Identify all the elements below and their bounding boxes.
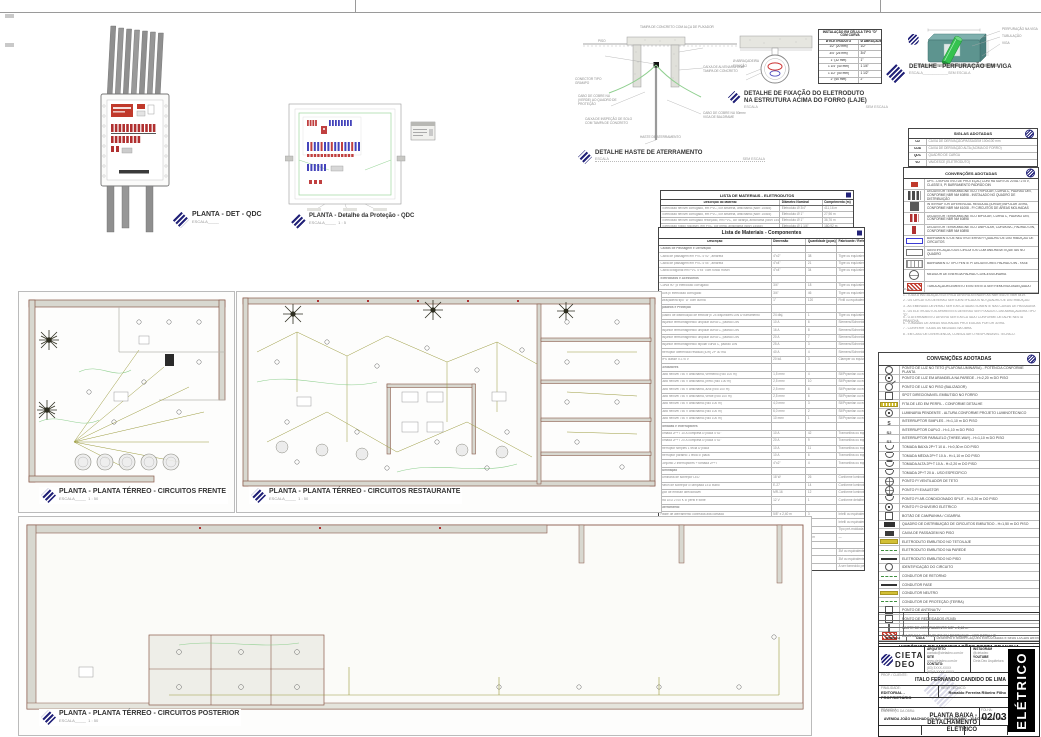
detail-title: DETALHE - PERFURAÇÃO EM VIGA [909, 64, 1036, 71]
historico-empty-row [879, 621, 1039, 629]
footer-row: REVISÃO: MEDIAÇÃO DESENHO: WAGNER OLIVEI… [879, 726, 1008, 735]
table-row: Cabo flexível 750 V antichama (rolo 100 … [659, 401, 864, 408]
legend-text: PONTO DE LUZ EM ARANDELA NA PAREDE - H=2… [900, 376, 1010, 380]
legend-text: ELETRODUTO EMBUTIDO NO TETO/LAJE [900, 540, 973, 544]
contact-cell-2: INSTAGRAM @cietadeo YOUTUBE Cieta Deo Ar… [971, 647, 1008, 673]
discipline-label: ELÉTRICO [1014, 652, 1029, 730]
legend-symbol-icon [885, 374, 893, 382]
viga-label: TUBULAÇÃO [1002, 35, 1038, 39]
detail-title: DETALHE HASTE DE ATERRAMENTO [595, 150, 765, 157]
legend-symbol-icon [906, 249, 923, 256]
historico-empty-row [879, 613, 1039, 621]
col-header: Ø ABRAÇADEIRA [858, 40, 881, 44]
purpose-cell: FINALIDADE: EDITORIAL - PROPRIETÁRIO [879, 686, 939, 698]
legend-text: ELETRODUTO EMBUTIDO NA PAREDE [900, 548, 968, 552]
legend-text: CONDUTOR DE PROTEÇÃO (TERRA) [900, 600, 966, 604]
footer-cell: REVISÃO: MEDIAÇÃO [879, 726, 922, 735]
table-row: Tomada 2P+T 20 A completa c/ placa 4"x2"… [659, 438, 864, 445]
legend-row: DISJUNTOR TERMOMAGNÉTICO BIPOLAR, CURVA … [904, 213, 1038, 224]
protection-schematic-drawing [285, 100, 440, 212]
legend-row: PONTO DE LUZ EM ARANDELA NA PAREDE - H=2… [879, 375, 1039, 384]
address-cell: ENDEREÇO DA OBRA: AVENIDA JOÃO MACHADO N… [879, 698, 1008, 708]
sheet-top-border [0, 12, 1041, 13]
legend-row: PONTO P/ EXAUSTOR [879, 486, 1039, 495]
table-title: CONVENÇÕES ADOTADAS [945, 171, 997, 176]
detail-title: PLANTA - Detalhe da Proteção - QDC [309, 213, 414, 220]
legend-row: PONTO DE LUZ NO TETO (PLAFON/LUMINÁRIA) … [879, 366, 1039, 375]
table-row: Disjuntor termomagnético unipolar curva … [659, 327, 864, 334]
legend-symbol-icon [881, 550, 897, 551]
brand-name: DEO [895, 660, 923, 669]
table-row: Interruptor diferencial residual (IDR) 2… [659, 349, 864, 356]
tree-symbol [423, 300, 443, 320]
legend-text: INTERRUPTOR DUPLO - H=1,10 m DO PISO [900, 428, 976, 432]
grounding-detail-title: DETALHE HASTE DE ATERRAMENTO ESCALASEM E… [578, 150, 768, 164]
table-row: Caixa octogonal em PVC 4"x4" com fundo m… [659, 268, 864, 275]
convencoes-main-table: CONVENÇÕES ADOTADAS PONTO DE LUZ NO TETO… [878, 352, 1040, 642]
fixation-table: INSTALAÇÃO EM CÉLULA TIPO "D" COM CURVA … [818, 29, 882, 84]
detail-scale: ESCALASEM ESCALA [595, 157, 765, 162]
legend-text: BARRAMENTO TIPO PENTE P/ DISJUNTORES PAD… [925, 262, 1030, 266]
detail-title: DETALHE DE FIXAÇÃO DO ELETRODUTO [744, 91, 888, 98]
plan-title: PLANTA - PLANTA TÉRREO - CIRCUITOS FRENT… [59, 488, 226, 496]
haste-label: TAMPA DE CONCRETO COM ALÇA DE PUXADOR [640, 26, 720, 30]
legend-text: CONDUTOR NEUTRO [900, 591, 940, 595]
protection-detail-title: PLANTA - Detalhe da Proteção - QDC ESCAL… [290, 213, 450, 229]
stamp-icon [1027, 355, 1036, 364]
legend-symbol-icon [885, 445, 894, 450]
legend-symbol-icon [881, 576, 897, 577]
fixation-table-row: 1" (32 mm) 1" [819, 58, 881, 65]
haste-label: CABO DE COBRE NU (VERDE) AO QUADRO DE PR… [578, 95, 624, 107]
legend-text: PONTO DE LUZ NO TETO (PLAFON/LUMINÁRIA) … [900, 366, 1039, 374]
detail-title: PLANTA - DET - QDC [192, 211, 262, 219]
legend-symbol-icon [910, 202, 919, 211]
table-row: Conjunto 2 interruptores + tomada 2P+T 4… [659, 460, 864, 467]
legend-text: DISJUNTOR TERMOMAGNÉTICO BIPOLAR, CURVA … [925, 215, 1038, 223]
legend-row: BARRAMENTO DE NEUTRO/TERRA P/ QUADRO DE … [904, 236, 1038, 247]
legend-symbol-icon [885, 392, 893, 400]
legend-symbol-icon [885, 496, 894, 501]
legend-symbol-icon [885, 512, 893, 520]
legend-row: TOMADA ALTA 2P+T 10 A - H=2,20 m DO PISO [879, 461, 1039, 470]
legend-row: TOMADA 2P+T 20 A - USO ESPECÍFICO [879, 469, 1039, 478]
legend-text: IDENTIFICAÇÃO DOS CIRCUITOS COM ANILHAS/… [925, 249, 1038, 257]
brand-cell: CIETA DEO [879, 647, 925, 673]
legend-text: MEDIDOR DE ENERGIA PADRÃO CONCESSIONÁRIA [925, 273, 1008, 277]
table-row: DPS classe II 275 V 20 kA 3 Clamper ou e… [659, 357, 864, 364]
beam-detail-title: DETALHE - PERFURAÇÃO EM VIGA ESCALA_____… [886, 64, 1036, 84]
legend-row: CONDUTOR FASE [879, 581, 1039, 590]
detail-scale: ESCALASEM ESCALA [744, 105, 888, 109]
legend-text: SPOT DIRECIONÁVEL EMBUTIDO NO FORRO [900, 393, 980, 397]
legend-symbol-icon [910, 214, 919, 222]
firm-logo-icon [578, 150, 592, 164]
legend-symbol-icon [885, 563, 893, 571]
legend-symbol-icon [909, 270, 919, 280]
tree-symbol [39, 330, 59, 350]
legend-row: BOTÃO DE CAMPAINHA / CIGARRA [879, 512, 1039, 521]
client-name: ITALO FERNANDO CANDIDO DE LIMA [881, 677, 1006, 683]
table-row: Luminária de sobrepor LED 18 W 26 Confor… [659, 475, 864, 482]
legend-row: CONDUTOR DE PROTEÇÃO (TERRA) [879, 598, 1039, 607]
legend-row: PONTO DE LUZ NO PISO (BALIZADOR) [879, 383, 1039, 392]
legend-text: INTERRUPTOR PARALELO (THREE-WAY) - H=1,1… [900, 436, 1006, 440]
table-row: Interruptor paralelo 1 tecla c/ placa 10… [659, 453, 864, 460]
cell-value: Ronaldo Ferreira Ribeiro Filho [941, 690, 1006, 695]
edge-mark [5, 14, 14, 18]
plan-scale: ESCALA_____ 1 : 50 [269, 496, 460, 501]
tree-symbol [283, 304, 303, 324]
convencoes-top-table: CONVENÇÕES ADOTADAS DPS - DISPOSITIVO DE… [903, 167, 1039, 294]
table-row: Spot de embutir direcionável MR-16 12 Co… [659, 490, 864, 497]
legend-text: PONTO P/ EXAUSTOR [900, 488, 941, 492]
legend-symbol-icon [885, 366, 893, 374]
firm-logo-icon [290, 213, 306, 229]
haste-label: HASTE DE ATERRAMENTO [640, 136, 700, 140]
panel-box [101, 94, 169, 186]
footer-cell: DESENHO: WAGNER OLIVEIRA [922, 726, 965, 735]
legend-symbol-icon [906, 260, 923, 268]
legend-text: IDENTIFICAÇÃO DO CIRCUITO [900, 565, 955, 569]
legend-row: INTERRUPTOR DUPLO - H=1,10 m DO PISO [879, 426, 1039, 435]
legend-symbol-icon [881, 558, 897, 560]
legend-symbol-icon [885, 477, 894, 486]
legend-row: IDENTIFICAÇÃO DO CIRCUITO [879, 564, 1039, 573]
qdc-detail-title: PLANTA - DET - QDC ESCALA_____ [172, 211, 292, 228]
table-row: Cabo flexível 750 V antichama (rolo 100 … [659, 416, 864, 423]
table-row: Aterramento [659, 505, 864, 512]
table-row: Disjuntor termomagnético bipolar curva C… [659, 342, 864, 349]
firm-logo-icon [251, 488, 266, 503]
legend-row: BARRAMENTO TIPO PENTE P/ DISJUNTORES PAD… [904, 259, 1038, 270]
legend-row: DPS - DISPOSITIVO DE PROTEÇÃO CONTRA SUR… [904, 179, 1038, 190]
legend-row: PONTO P/ AR-CONDICIONADO SPLIT - H=2,20 … [879, 495, 1039, 504]
fixation-table-row: 1 1/2" (50 mm) 1 1/2" [819, 71, 881, 78]
col-header: Descrição [659, 240, 771, 244]
legend-symbol-icon [881, 584, 897, 586]
legend-text: CAIXA DE PASSAGEM NO PISO [900, 531, 956, 535]
fixation-table-header: INSTALAÇÃO EM CÉLULA TIPO "D" COM CURVA [819, 30, 881, 40]
plan-scale: ESCALA_____ 1 : 50 [59, 496, 226, 501]
table-row: Caixas de Passagem e Derivação [659, 246, 864, 253]
edge-mark [5, 43, 14, 47]
table-row: Curva 90° p/ eletroduto corrugado 3/4" 1… [659, 283, 864, 290]
col-header: DESENHO E MODIFICAÇÕES EXECUTADAS E SEUS… [934, 637, 1039, 641]
legend-text: DPS - DISPOSITIVO DE PROTEÇÃO CONTRA SUR… [925, 180, 1038, 188]
qdc-3d-detail-drawing [85, 22, 205, 234]
tree-symbol [557, 302, 575, 320]
legend-symbol-icon [885, 470, 894, 475]
legend-text: PONTO P/ AR-CONDICIONADO SPLIT - H=2,20 … [900, 497, 1000, 501]
col-header: Fabricante / Referência [836, 239, 864, 245]
legend-text: TOMADA BAIXA 2P+T 10 A - H=0,30 m DO PIS… [900, 445, 981, 449]
sheet-number: 02/03 [981, 712, 1007, 723]
legend-text: TOMADA 2P+T 20 A - USO ESPECÍFICO [900, 471, 969, 475]
col-header: Diâmetro Nominal [779, 200, 821, 205]
siglas-row: CD CAIXA DE DERIVAÇÃO/PASSAGEM 100x100 m… [909, 139, 1037, 146]
table-row: Caixa de passagem em PVC 4"x4", amarela … [659, 261, 864, 268]
viga-label: VIGA [1002, 42, 1038, 46]
client-cell: PROP. / CLIENTE: ITALO FERNANDO CANDIDO … [879, 673, 1008, 686]
legend-row: SPOT DIRECIONÁVEL EMBUTIDO NO FORRO [879, 392, 1039, 401]
plan-title-frente: PLANTA - PLANTA TÉRREO - CIRCUITOS FRENT… [39, 487, 228, 504]
detail-title: NA ESTRUTURA ACIMA DO FORRO (LAJE) [744, 98, 888, 105]
legend-row: QUADRO DE DISTRIBUIÇÃO DE CIRCUITOS EMBU… [879, 521, 1039, 530]
legend-row: DISJUNTOR TERMOMAGNÉTICO TRIPOLAR, CURVA… [904, 190, 1038, 201]
legend-row: PONTO P/ VENTILADOR DE TETO [879, 478, 1039, 487]
fixation-table-row: 2" (60 mm) 2" [819, 78, 881, 84]
table-row: Tomadas e Interruptores [659, 423, 864, 430]
legend-symbol-icon [906, 238, 923, 245]
stamp-icon [1025, 129, 1034, 138]
haste-label: CAIXA DE INSPEÇÃO DE SOLO COM TAMPA DE C… [585, 118, 637, 126]
siglas-table: SIGLAS ADOTADAS CD CAIXA DE DERIVAÇÃO/PA… [908, 128, 1038, 167]
legend-row: MEDIDOR DE ENERGIA PADRÃO CONCESSIONÁRIA [904, 270, 1038, 281]
sheet-title-cell: PRANCHA: PLANTA BAIXA - DETALHAMENTO ELÉ… [879, 708, 980, 726]
table-row: Plafon de sobrepor c/ lâmpada LED bulbo … [659, 483, 864, 490]
brand-logo-icon [881, 654, 893, 666]
legend-text: QUADRO DE DISTRIBUIÇÃO DE CIRCUITOS EMBU… [900, 522, 1030, 526]
legend-symbol-icon [884, 522, 895, 527]
firm-logo-icon [41, 488, 56, 503]
table-row: Disjuntor termomagnético unipolar curva … [659, 335, 864, 342]
note-line: 8 - EM CASO DE DIVERGÊNCIA, CONSULTAR O … [903, 333, 1037, 339]
col-header: DATA [906, 637, 934, 641]
siglas-row: QDC QUADRO DE CARGA [909, 153, 1037, 160]
table-row: Quadros e Proteção [659, 305, 864, 312]
fixation-table-row: 3/4" (25 mm) 3/4" [819, 51, 881, 58]
haste-label: CONECTOR TIPO GRAMPO [575, 78, 611, 86]
firm-logo-icon [886, 64, 906, 84]
firm-logo-icon [41, 710, 56, 725]
legend-symbol-icon [880, 591, 898, 595]
col-header: Dimensão [771, 239, 806, 245]
table-row: Condutores [659, 364, 864, 371]
floorplan-restaurante: PLANTA - PLANTA TÉRREO - CIRCUITOS RESTA… [236, 291, 662, 513]
legend-symbol-icon [885, 486, 894, 495]
tree-symbol [37, 400, 57, 420]
table-row: Cabo flexível 750 V antichama, verde (ro… [659, 394, 864, 401]
legend-text: INTERRUPTOR DIFERENCIAL RESIDUAL (IDR/DR… [925, 203, 1038, 211]
stamp-icon [857, 231, 862, 236]
detail-scale: ESCALA_____________SEM ESCALA [909, 71, 1036, 75]
legend-text: CONDUTOR DE RETORNO [900, 574, 948, 578]
fold-tick [880, 0, 881, 12]
table-row: Fita LED 2700 K c/ perfil e fonte 12 V 1… [659, 497, 864, 504]
legend-row: CONDUTOR NEUTRO [879, 589, 1039, 598]
contact-cell-1: ARQUITETO contato@cietadeo.com.br SITE w… [925, 647, 971, 673]
legend-text: FITA DE LED EM PERFIL - CONFORME DETALHE [900, 402, 984, 406]
legend-row: CAIXA DE PASSAGEM NO PISO [879, 529, 1039, 538]
detail-scale: ESCALA_____ 1 : 5 [309, 220, 414, 225]
haste-label: PISO [598, 40, 618, 44]
table-row: Cabo flexível 750 V antichama, vermelho … [659, 372, 864, 379]
legend-symbol-icon [885, 531, 894, 536]
legend-row: ELETRODUTO EMBUTIDO NO TETO/LAJE [879, 538, 1039, 547]
cad-sheet: PLANTA - DET - QDC ESCALA_____ [0, 0, 1041, 737]
legend-row: INTERRUPTOR PARALELO (THREE-WAY) - H=1,1… [879, 435, 1039, 444]
table-row: Tomada 2P+T 10 A completa c/ placa 4"x2"… [659, 431, 864, 438]
col-header: Quantidade (pças) [805, 239, 836, 245]
firm-logo-icon [728, 91, 741, 104]
floorplan-frente: PLANTA - PLANTA TÉRREO - CIRCUITOS FRENT… [18, 291, 235, 513]
conduits [107, 26, 164, 98]
legend-text: CONDUTOR FASE [900, 583, 934, 587]
table-row: Luva p/ eletroduto corrugado 3/4" 46 Tig… [659, 290, 864, 297]
table-title: Lista de Materiais - Componentes [722, 230, 802, 236]
plan-title: PLANTA - PLANTA TÉRREO - CIRCUITOS POSTE… [59, 710, 239, 718]
table-row: Cabo flexível 750 V antichama (rolo 100 … [659, 409, 864, 416]
legend-symbol-icon [885, 503, 893, 511]
legend-row: INTERRUPTOR DIFERENCIAL RESIDUAL (IDR/DR… [904, 202, 1038, 213]
sheet-number-cell: FOLHA: 02/03 [980, 708, 1008, 726]
legend-text: TOMADA ALTA 2P+T 10 A - H=2,20 m DO PISO [900, 462, 979, 466]
col-header: Comprimento (m) [822, 200, 853, 205]
table-title: CONVENÇÕES ADOTADAS [927, 356, 992, 362]
panel-legs [107, 186, 153, 232]
legend-row: TOMADA BAIXA 2P+T 10 A - H=0,30 m DO PIS… [879, 443, 1039, 452]
stamp-icon [1026, 169, 1035, 178]
detail-scale: ESCALA_____ [192, 219, 262, 224]
firm-logo-icon [172, 211, 189, 228]
floorplan-posterior-drawing [19, 517, 811, 735]
table-row: Abraçadeira tipo "D" com cunha 1" 120 Fi… [659, 298, 864, 305]
notes-block: NOTAS:1 - TODA A INSTALAÇÃO ELÉTRICA DEV… [903, 288, 1037, 338]
floorplan-frente-drawing [19, 292, 234, 512]
legend-symbol-icon [880, 539, 898, 543]
col-header: Descrição do Material [661, 201, 779, 205]
legend-text: DISJUNTOR TERMOMAGNÉTICO UNIPOLAR, CURVA… [925, 226, 1038, 234]
discipline-bar: ELÉTRICO [1008, 649, 1035, 732]
legend-symbol-icon [911, 182, 918, 187]
legend-text: INTERRUPTOR SIMPLES - H=1,10 m DO PISO [900, 419, 979, 423]
fixation-table-row: 1/2" (20 mm) 1/2" [819, 45, 881, 52]
legend-symbol-icon [885, 453, 894, 458]
historico-empty-row [879, 628, 1039, 636]
legend-row: LUMINÁRIA PENDENTE - ALTURA CONFORME PRO… [879, 409, 1039, 418]
table-row: Eletrodutos e Acessórios [659, 276, 864, 283]
table-row: Quadro de distribuição de embutir p/ 24 … [659, 313, 864, 320]
legend-symbol-icon [908, 191, 921, 200]
legend-text: TOMADA MÉDIA 2P+T 10 A - H=1,10 m DO PIS… [900, 454, 982, 458]
table-row: Cabo flexível 750 V antichama, azul (rol… [659, 386, 864, 393]
legend-text: PONTO P/ CHUVEIRO ELÉTRICO [900, 505, 959, 509]
table-title: LISTA DE MATERIAIS - ELETRODUTOS [720, 193, 794, 198]
legend-symbol-icon [880, 402, 898, 407]
eletrodutos-table: LISTA DE MATERIAIS - ELETRODUTOS Descriç… [660, 190, 854, 230]
legend-row: DISJUNTOR TERMOMAGNÉTICO UNIPOLAR, CURVA… [904, 225, 1038, 236]
legend-text: BARRAMENTO DE NEUTRO/TERRA P/ QUADRO DE … [925, 237, 1038, 245]
legend-symbol-icon [881, 601, 897, 602]
legend-row: PONTO P/ CHUVEIRO ELÉTRICO [879, 504, 1039, 513]
fixation-table-row: 1 1/4" (40 mm) 1 1/4" [819, 64, 881, 71]
table-row: Caixa de passagem em PVC 4"x2", amarela … [659, 253, 864, 260]
table-row: Disjuntor termomagnético unipolar curva … [659, 320, 864, 327]
responsible-cell: RESP. TÉCNICO: Ronaldo Ferreira Ribeiro … [939, 686, 1008, 698]
legend-symbol-icon [885, 383, 893, 391]
plan-scale: ESCALA_____ 1 : 50 [59, 718, 239, 723]
legend-text: DISJUNTOR TERMOMAGNÉTICO TRIPOLAR, CURVA… [925, 190, 1038, 202]
legend-symbol-icon [912, 226, 916, 234]
fold-tick [355, 0, 356, 12]
table-title: SIGLAS ADOTADAS [954, 131, 992, 136]
footer-cell: USO: COMERCIAL [965, 726, 1008, 735]
legend-row: CONDUTOR DE RETORNO [879, 572, 1039, 581]
legend-row: ELETRODUTO EMBUTIDO NA PAREDE [879, 546, 1039, 555]
siglas-row: CDA CAIXA DE DERIVAÇÃO ALTA (ACIMA DO FO… [909, 146, 1037, 153]
plan-title: PLANTA - PLANTA TÉRREO - CIRCUITOS RESTA… [269, 488, 460, 496]
legend-row: ELETRODUTO EMBUTIDO NO PISO [879, 555, 1039, 564]
legend-text: ELETRODUTO EMBUTIDO NO PISO [900, 557, 963, 561]
floorplan-restaurante-drawing [237, 292, 661, 512]
legend-row: INTERRUPTOR SIMPLES - H=1,10 m DO PISO [879, 418, 1039, 427]
legend-row: TOMADA MÉDIA 2P+T 10 A - H=1,10 m DO PIS… [879, 452, 1039, 461]
viga-label: PERFURAÇÃO NA VIGA [1002, 28, 1038, 32]
fixation-detail-title: DETALHE DE FIXAÇÃO DO ELETRODUTO NA ESTR… [728, 91, 888, 110]
table-row: Iluminação [659, 468, 864, 475]
fixation-label: FIXAÇÃO [733, 65, 763, 69]
legend-text: PONTO P/ VENTILADOR DE TETO [900, 479, 960, 483]
col-header: Ø ELETRODUTO [819, 40, 858, 44]
legend-text: LUMINÁRIA PENDENTE - ALTURA CONFORME PRO… [900, 411, 1028, 415]
haste-label: CABO DE COBRE NU 50mm² VIGA DE BALDRAME [703, 112, 747, 120]
brand-name: CIETA [895, 651, 923, 660]
stamp-icon [846, 193, 851, 198]
floorplan-posterior: PLANTA - PLANTA TÉRREO - CIRCUITOS POSTE… [18, 516, 812, 736]
table-row: Cabo flexível 750 V antichama, preto (ro… [659, 379, 864, 386]
plan-title-posterior: PLANTA - PLANTA TÉRREO - CIRCUITOS POSTE… [39, 709, 241, 726]
table-row: Interruptor simples 1 tecla c/ placa 10 … [659, 446, 864, 453]
legend-row: FITA DE LED EM PERFIL - CONFORME DETALHE [879, 400, 1039, 409]
plan-title-restaurante: PLANTA - PLANTA TÉRREO - CIRCUITOS RESTA… [249, 487, 462, 504]
title-block: ELÉTRICO CIETA DEO ARQUITETO contato@cie… [878, 646, 1040, 737]
col-header: SÍMBOLO [879, 637, 906, 641]
siglas-row: VD VAI/DESCE (ELETRODUTO) [909, 160, 1037, 166]
contact-value: Cieta Deo Arquitetura [973, 660, 1006, 664]
legend-text: BOTÃO DE CAMPAINHA / CIGARRA [900, 514, 962, 518]
legend-row: IDENTIFICAÇÃO DOS CIRCUITOS COM ANILHAS/… [904, 247, 1038, 258]
legend-text: PONTO DE LUZ NO PISO (BALIZADOR) [900, 385, 969, 389]
legend-symbol-icon [885, 462, 894, 467]
